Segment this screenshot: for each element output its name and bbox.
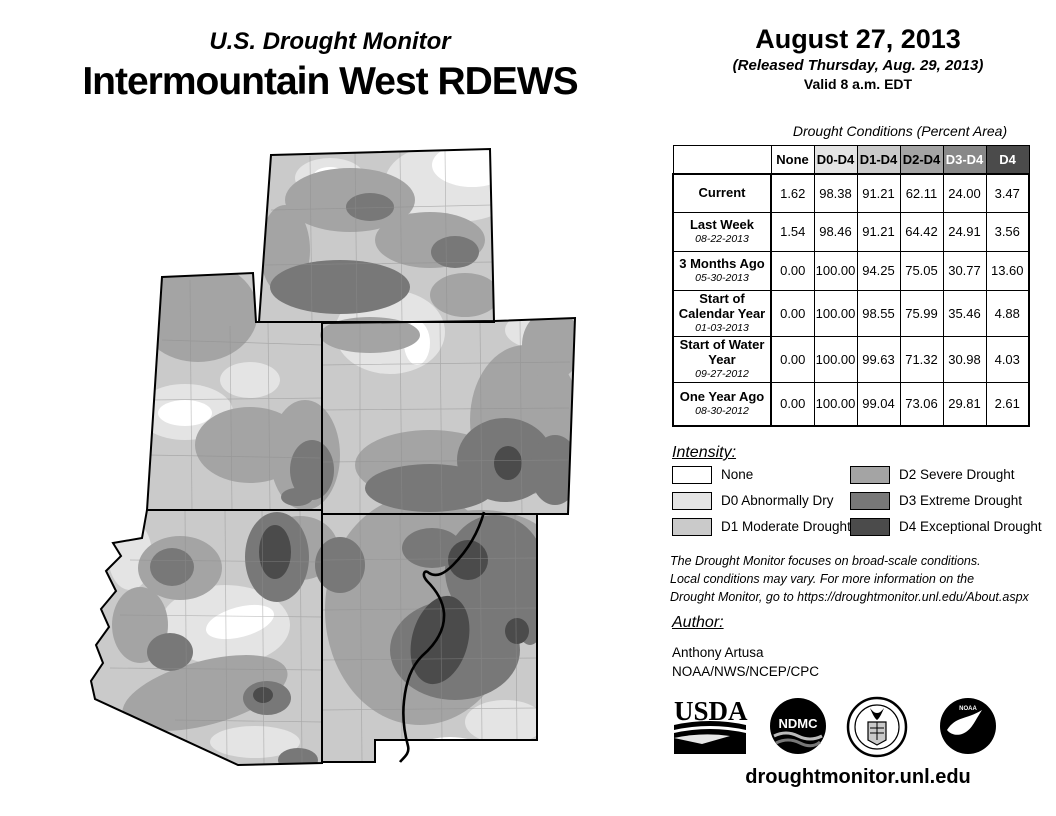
cell: 71.32 — [900, 336, 943, 382]
cell: 64.42 — [900, 212, 943, 251]
table-row: Current 1.62 98.38 91.21 62.11 24.00 3.4… — [673, 174, 1029, 212]
cell: 30.77 — [943, 251, 986, 290]
cell: 100.00 — [814, 382, 857, 426]
cell: 2.61 — [986, 382, 1029, 426]
cell: 0.00 — [771, 290, 814, 336]
author-name: Anthony Artusa — [672, 645, 764, 660]
drought-shading — [78, 130, 662, 780]
cell: 98.55 — [857, 290, 900, 336]
cell: 3.56 — [986, 212, 1029, 251]
row-date: 09-27-2012 — [674, 368, 770, 380]
cell: 24.91 — [943, 212, 986, 251]
note-line: The Drought Monitor focuses on broad-sca… — [670, 552, 1056, 570]
region-title: Intermountain West RDEWS — [18, 60, 642, 104]
col-header-d4: D4 — [986, 146, 1029, 175]
valid-time: Valid 8 a.m. EDT — [660, 76, 1056, 92]
monitor-title: U.S. Drought Monitor — [30, 28, 630, 56]
cell: 3.47 — [986, 174, 1029, 212]
drought-conditions-table: None D0-D4 D1-D4 D2-D4 D3-D4 D4 Current … — [672, 145, 1030, 427]
row-label: Start of Calendar Year — [674, 292, 770, 321]
table-row: Start of Water Year 09-27-2012 0.00 100.… — [673, 336, 1029, 382]
row-label: Start of Water Year — [674, 338, 770, 367]
row-label: Current — [674, 186, 770, 200]
table-row: One Year Ago 08-30-2012 0.00 100.00 99.0… — [673, 382, 1029, 426]
none-swatch — [672, 466, 712, 484]
d1-swatch — [672, 518, 712, 536]
table-corner-cell — [673, 146, 771, 175]
legend-label: None — [721, 467, 753, 482]
cell: 0.00 — [771, 382, 814, 426]
drought-map-container — [78, 130, 662, 780]
col-header-d3-d4: D3-D4 — [943, 146, 986, 175]
row-date: 08-22-2013 — [674, 233, 770, 245]
table-row: Start of Calendar Year 01-03-2013 0.00 1… — [673, 290, 1029, 336]
cell: 99.04 — [857, 382, 900, 426]
d4-swatch — [850, 518, 890, 536]
date-block: August 27, 2013 (Released Thursday, Aug.… — [660, 24, 1056, 92]
row-date: 05-30-2013 — [674, 272, 770, 284]
cell: 73.06 — [900, 382, 943, 426]
noaa-logo: NOAA — [938, 696, 998, 756]
d2-swatch — [850, 466, 890, 484]
d3-swatch — [850, 492, 890, 510]
legend-item-d3: D3 Extreme Drought — [850, 492, 1042, 509]
cell: 94.25 — [857, 251, 900, 290]
cell: 62.11 — [900, 174, 943, 212]
released-date: (Released Thursday, Aug. 29, 2013) — [660, 57, 1056, 74]
cell: 0.00 — [771, 251, 814, 290]
cell: 100.00 — [814, 290, 857, 336]
disclaimer-notes: The Drought Monitor focuses on broad-sca… — [670, 552, 1056, 606]
ndmc-logo: NDMC — [768, 696, 828, 756]
note-line: Drought Monitor, go to https://droughtmo… — [670, 588, 1056, 606]
row-label: One Year Ago — [674, 390, 770, 404]
legend-title: Intensity: — [672, 444, 736, 462]
info-panel: August 27, 2013 (Released Thursday, Aug.… — [660, 0, 1056, 816]
col-header-d0-d4: D0-D4 — [814, 146, 857, 175]
cell: 91.21 — [857, 212, 900, 251]
col-header-d1-d4: D1-D4 — [857, 146, 900, 175]
row-date: 08-30-2012 — [674, 405, 770, 417]
cell: 1.54 — [771, 212, 814, 251]
row-label: 3 Months Ago — [674, 257, 770, 271]
table-row: 3 Months Ago 05-30-2013 0.00 100.00 94.2… — [673, 251, 1029, 290]
note-line: Local conditions may vary. For more info… — [670, 570, 1056, 588]
cell: 4.88 — [986, 290, 1029, 336]
cell: 99.63 — [857, 336, 900, 382]
cell: 100.00 — [814, 251, 857, 290]
col-header-none: None — [771, 146, 814, 175]
cell: 29.81 — [943, 382, 986, 426]
noaa-logo-text: NOAA — [959, 706, 977, 712]
legend-item-none: None — [672, 466, 851, 483]
author-organization: NOAA/NWS/NCEP/CPC — [672, 664, 819, 679]
cell: 13.60 — [986, 251, 1029, 290]
cell: 75.99 — [900, 290, 943, 336]
cell: 24.00 — [943, 174, 986, 212]
cell: 91.21 — [857, 174, 900, 212]
col-header-d2-d4: D2-D4 — [900, 146, 943, 175]
commerce-seal-logo — [846, 696, 908, 758]
legend-item-d1: D1 Moderate Drought — [672, 518, 851, 535]
cell: 75.05 — [900, 251, 943, 290]
cell: 4.03 — [986, 336, 1029, 382]
legend-label: D3 Extreme Drought — [899, 493, 1022, 508]
legend-label: D0 Abnormally Dry — [721, 493, 834, 508]
ndmc-logo-text: NDMC — [779, 716, 819, 731]
legend-label: D4 Exceptional Drought — [899, 519, 1042, 534]
legend-label: D1 Moderate Drought — [721, 519, 851, 534]
cell: 100.00 — [814, 336, 857, 382]
map-date: August 27, 2013 — [660, 24, 1056, 55]
author-heading: Author: — [672, 614, 724, 632]
table-row: Last Week 08-22-2013 1.54 98.46 91.21 64… — [673, 212, 1029, 251]
table-title: Drought Conditions (Percent Area) — [760, 123, 1040, 139]
d0-swatch — [672, 492, 712, 510]
legend-item-d0: D0 Abnormally Dry — [672, 492, 851, 509]
table-header-row: None D0-D4 D1-D4 D2-D4 D3-D4 D4 — [673, 146, 1029, 175]
legend-item-d4: D4 Exceptional Drought — [850, 518, 1042, 535]
row-label: Last Week — [674, 218, 770, 232]
cell: 98.46 — [814, 212, 857, 251]
legend-item-d2: D2 Severe Drought — [850, 466, 1042, 483]
website-url: droughtmonitor.unl.edu — [660, 766, 1056, 789]
cell: 98.38 — [814, 174, 857, 212]
cell: 0.00 — [771, 336, 814, 382]
cell: 35.46 — [943, 290, 986, 336]
cell: 1.62 — [771, 174, 814, 212]
logos-row: USDA NDMC NOAA — [670, 696, 1056, 758]
drought-map — [78, 130, 662, 780]
usda-logo: USDA — [672, 696, 748, 756]
row-date: 01-03-2013 — [674, 322, 770, 334]
legend-label: D2 Severe Drought — [899, 467, 1015, 482]
cell: 30.98 — [943, 336, 986, 382]
